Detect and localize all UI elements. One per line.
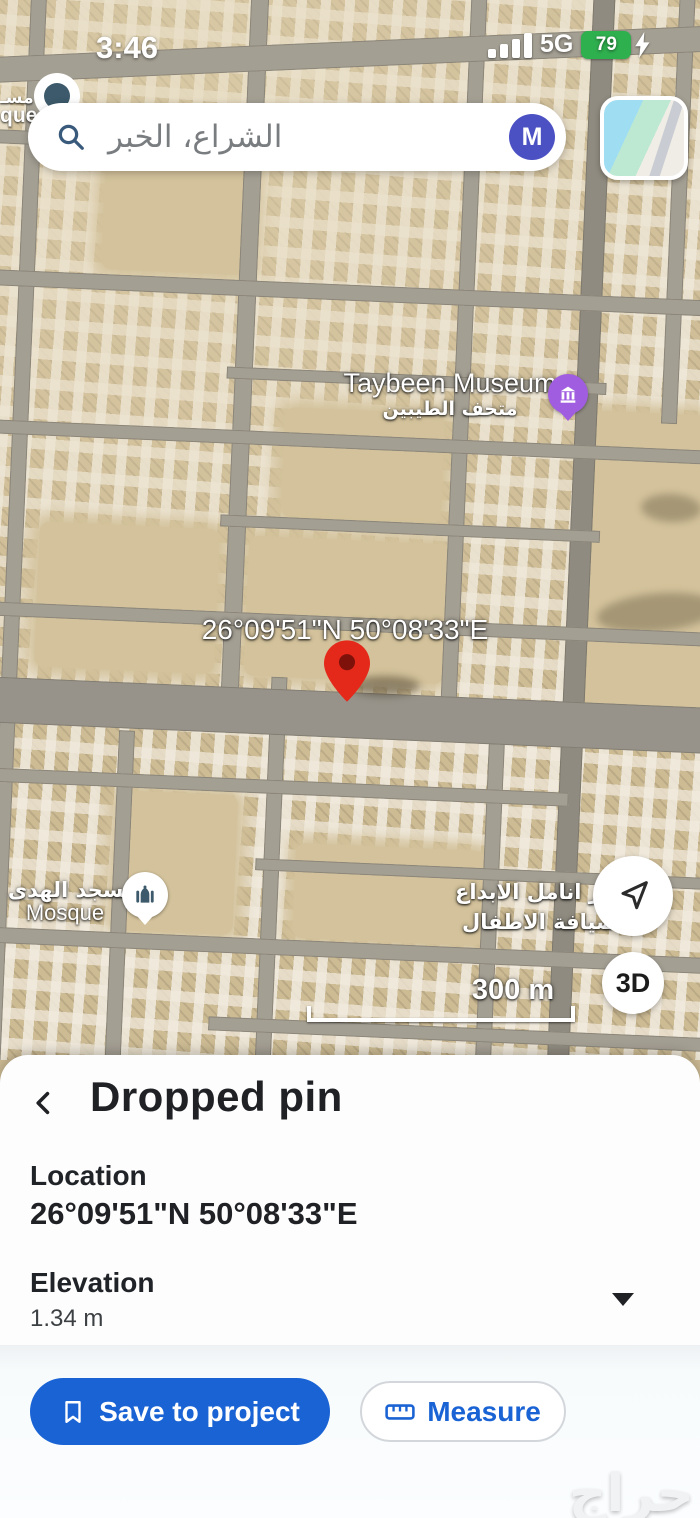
road: [661, 0, 697, 424]
mosque-label-ar[interactable]: مسجد الهدى: [5, 878, 140, 902]
avatar-letter: M: [522, 123, 543, 152]
mosque-pin-pointer: [137, 916, 153, 925]
charging-bolt-icon: [635, 32, 651, 58]
mosque-pin[interactable]: [122, 872, 168, 918]
app-screen: Taybeen Museum متحف الطيبين 26°09'51"N 5…: [0, 0, 700, 1518]
status-time: 3:46: [96, 30, 158, 66]
status-indicators: 5G 79: [488, 30, 651, 59]
search-input[interactable]: الشراع، الخبر: [108, 119, 509, 155]
network-type-label: 5G: [540, 30, 573, 59]
signal-bars-icon: [488, 32, 532, 58]
save-to-project-label: Save to project: [99, 1396, 300, 1428]
sheet-title: Dropped pin: [90, 1073, 343, 1121]
battery-indicator: 79: [581, 31, 631, 59]
minimap-road: [640, 96, 687, 180]
museum-pin[interactable]: [548, 374, 588, 414]
save-to-project-button[interactable]: Save to project: [30, 1378, 330, 1445]
museum-pin-pointer: [560, 412, 576, 421]
museum-label-ar[interactable]: متحف الطيبين: [330, 398, 570, 420]
road: [0, 765, 569, 807]
mosque-label-en[interactable]: Mosque: [5, 900, 125, 926]
elevation-label: Elevation: [30, 1267, 154, 1299]
watermark: حراج: [569, 1464, 694, 1518]
measure-label: Measure: [427, 1396, 541, 1428]
measure-button[interactable]: Measure: [360, 1381, 566, 1442]
battery-percent: 79: [596, 34, 617, 56]
search-icon[interactable]: [56, 122, 86, 152]
museum-icon: [557, 383, 579, 405]
back-button[interactable]: [22, 1081, 66, 1125]
three-d-label: 3D: [616, 968, 651, 999]
location-value: 26°09'51"N 50°08'33"E: [30, 1196, 358, 1232]
elevation-dropdown-caret[interactable]: [612, 1293, 634, 1306]
ruler-icon: [385, 1401, 415, 1423]
map-scale-label: 300 m: [423, 974, 603, 1007]
dropped-pin-icon[interactable]: [324, 640, 370, 702]
compass-button[interactable]: [593, 856, 673, 936]
bookmark-icon: [60, 1399, 86, 1425]
sand-lot: [281, 407, 446, 524]
center-label-ar-line1[interactable]: ركز انامل الابداع: [455, 880, 615, 904]
location-label: Location: [30, 1160, 147, 1192]
sand-lot: [34, 521, 220, 674]
three-d-button[interactable]: 3D: [602, 952, 664, 1014]
account-avatar[interactable]: M: [509, 114, 555, 160]
elevation-value: 1.34 m: [30, 1305, 103, 1333]
dropped-pin-sheet: Dropped pin Location 26°09'51"N 50°08'33…: [0, 1055, 700, 1518]
sand-lot: [101, 154, 256, 275]
navigation-arrow-icon: [613, 876, 653, 916]
search-bar[interactable]: الشراع، الخبر M: [28, 103, 566, 171]
chevron-left-icon: [30, 1089, 58, 1117]
map-style-button[interactable]: [600, 96, 688, 180]
map-scale-bar: [307, 1006, 575, 1022]
mosque-icon: [132, 882, 158, 908]
museum-label-en[interactable]: Taybeen Museum: [330, 368, 570, 399]
